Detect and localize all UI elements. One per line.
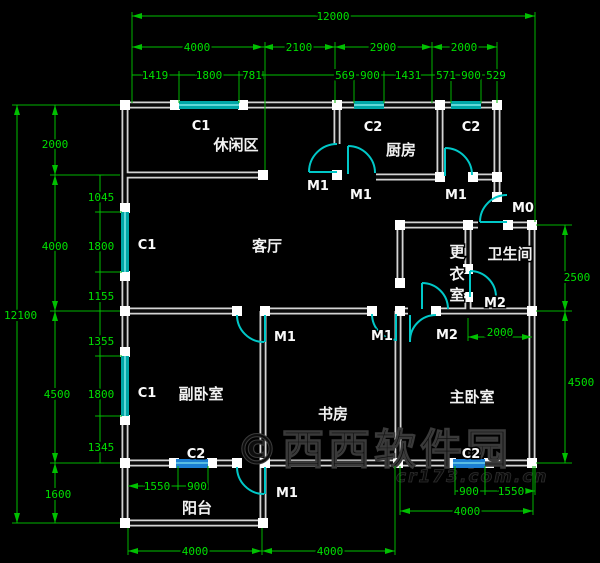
dim-top-2900: 2900: [370, 41, 397, 54]
dim-left-2000: 2000: [42, 138, 69, 151]
door-m2-master: [410, 315, 436, 342]
svg-text:衣: 衣: [449, 265, 464, 283]
door-label-m2-bathroom: M2: [484, 296, 506, 311]
window-label-c2-bottom-right: C2: [462, 447, 481, 462]
window-c2-kitchen: [354, 101, 384, 109]
door-m2-dressing: [422, 283, 448, 309]
floor-plan-page: ©西西软件园 cr173.com.cn: [0, 0, 600, 563]
dim-master-4000: 4000: [454, 505, 481, 518]
dim-top-571: 571: [436, 69, 456, 82]
svg-text:更: 更: [449, 243, 465, 261]
window-label-c1-top: C1: [192, 119, 211, 134]
room-label-study: 书房: [318, 405, 348, 423]
dim-left-1155: 1155: [88, 290, 115, 303]
dim-top-1431: 1431: [395, 69, 422, 82]
room-label-second-bedroom: 副卧室: [178, 385, 223, 403]
dim-top-569: 569: [335, 69, 355, 82]
door-label-m1-study: M1: [371, 329, 393, 344]
window-label-c2-bottom-left: C2: [187, 447, 206, 462]
door-label-m1-kitchen: M1: [350, 188, 372, 203]
window-label-c1-left-lower: C1: [138, 386, 157, 401]
room-label-bathroom: 卫生间: [487, 245, 532, 263]
dim-balcony-900: 900: [187, 480, 207, 493]
dim-right-2500: 2500: [564, 271, 591, 284]
room-label-master-bedroom: 主卧室: [449, 388, 494, 406]
svg-text:室: 室: [449, 286, 464, 304]
dim-master-1550: 1550: [498, 485, 525, 498]
door-m1-kitchen: [348, 146, 375, 174]
door-m1-foyer: [309, 144, 337, 172]
door-label-m1-balcony: M1: [276, 486, 298, 501]
door-label-m0-entry: M0: [512, 201, 534, 216]
dim-top-total: 12000: [316, 10, 349, 23]
dim-master-900: 900: [459, 485, 479, 498]
dim-left-4000: 4000: [42, 240, 69, 253]
room-label-dressing-room: 更 衣 室: [449, 243, 465, 304]
dim-top-2100: 2100: [286, 41, 313, 54]
dim-left-1355: 1355: [88, 335, 115, 348]
dim-left-1800a: 1800: [88, 240, 115, 253]
dim-top-1419: 1419: [142, 69, 169, 82]
room-label-balcony: 阳台: [182, 499, 212, 517]
dim-top-2000: 2000: [451, 41, 478, 54]
dim-top-1800: 1800: [196, 69, 223, 82]
dim-top-4000: 4000: [184, 41, 211, 54]
door-m0-entry: [480, 195, 507, 222]
dim-right-4500: 4500: [568, 376, 595, 389]
dim-top-529: 529: [486, 69, 506, 82]
room-label-living-room: 客厅: [251, 237, 282, 255]
watermark-domain: cr173.com.cn: [396, 467, 549, 487]
door-label-m2-master: M2: [436, 328, 458, 343]
dim-bath-2000: 2000: [487, 326, 514, 339]
window-c1-left-upper: [121, 212, 129, 272]
door-label-m1-foyer: M1: [307, 179, 329, 194]
dim-bottom-4000b: 4000: [317, 545, 344, 558]
window-c1-top: [179, 101, 239, 109]
room-label-kitchen: 厨房: [386, 141, 416, 159]
dim-left-1045: 1045: [88, 191, 115, 204]
dim-top-900a: 900: [360, 69, 380, 82]
door-m2-bathroom: [470, 271, 496, 297]
window-label-c1-left-upper: C1: [138, 238, 157, 253]
door-label-m1-second-bedroom: M1: [274, 330, 296, 345]
watermark: ©西西软件园 cr173.com.cn: [236, 425, 549, 487]
dim-left-total: 12100: [4, 309, 37, 322]
window-label-c2-top-right: C2: [462, 120, 481, 135]
dim-bottom-4000a: 4000: [182, 545, 209, 558]
dim-left-1800b: 1800: [88, 388, 115, 401]
dim-left-4500: 4500: [44, 388, 71, 401]
floor-plan-canvas: ©西西软件园 cr173.com.cn: [0, 0, 600, 563]
dim-balcony-1550: 1550: [144, 480, 171, 493]
dim-left-1345: 1345: [88, 441, 115, 454]
room-label-leisure-area: 休闲区: [212, 136, 258, 154]
window-label-c2-kitchen: C2: [364, 120, 383, 135]
dim-top-900b: 900: [461, 69, 481, 82]
window-c2-top-right: [451, 101, 481, 109]
dim-top-781: 781: [242, 69, 262, 82]
window-c1-left-lower: [121, 356, 129, 416]
dim-left-1600: 1600: [45, 488, 72, 501]
door-label-m1-top-right: M1: [445, 188, 467, 203]
door-m1-top-right: [445, 148, 472, 176]
